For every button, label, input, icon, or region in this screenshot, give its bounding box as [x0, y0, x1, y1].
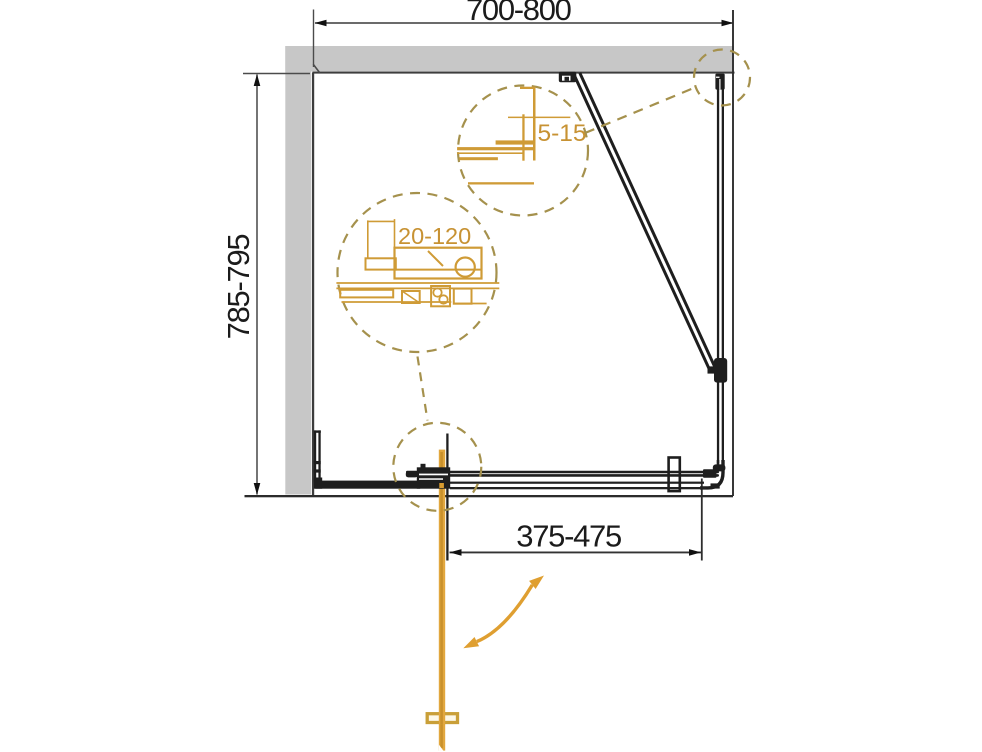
svg-text:785-795: 785-795 — [221, 235, 256, 340]
svg-text:20-120: 20-120 — [398, 223, 471, 249]
svg-text:375-475: 375-475 — [516, 519, 621, 554]
svg-text:700-800: 700-800 — [466, 0, 572, 27]
svg-text:5-15: 5-15 — [538, 120, 587, 147]
